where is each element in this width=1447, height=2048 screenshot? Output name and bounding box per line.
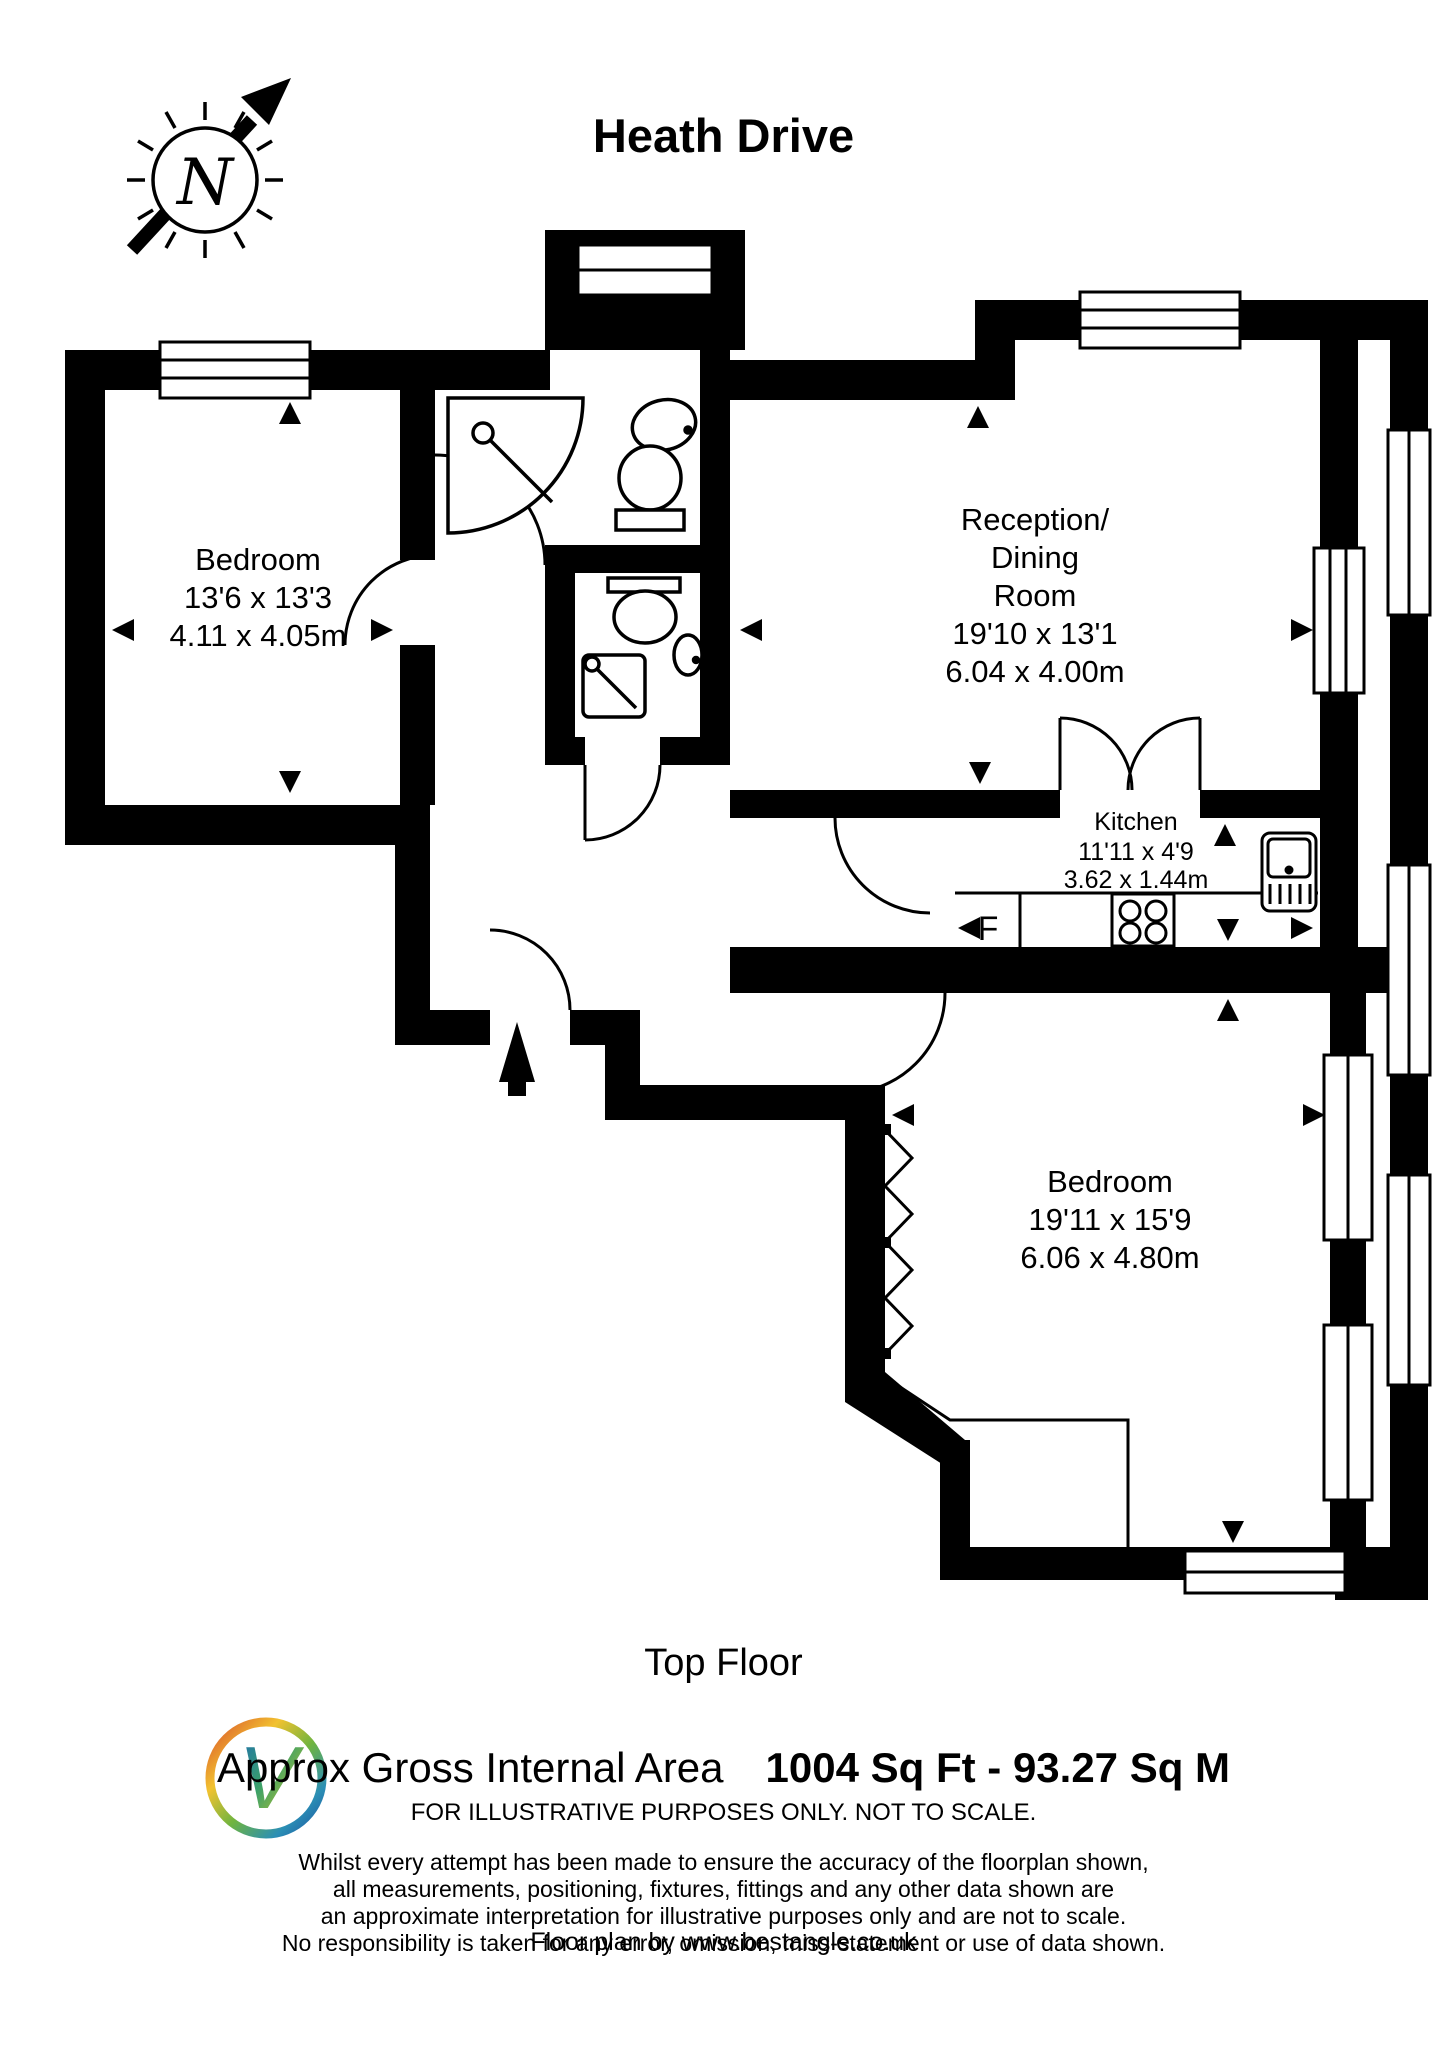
illustrative-note: FOR ILLUSTRATIVE PURPOSES ONLY. NOT TO S… <box>0 1799 1447 1827</box>
reception-metric: 6.04 x 4.00m <box>945 654 1124 689</box>
credit-line: Floor plan by www.bestangle.co.uk <box>0 1928 1447 1957</box>
window-outer-3 <box>1388 1175 1430 1385</box>
door-bedroom2 <box>845 993 945 1093</box>
kitchen-imperial: 11'11 x 4'9 <box>1078 838 1194 866</box>
area-value: 1004 Sq Ft - 93.27 Sq M <box>766 1744 1231 1791</box>
wc-basin-icon <box>674 635 702 675</box>
window-bedroom1-top <box>160 342 310 398</box>
bedroom2-name: Bedroom <box>1047 1164 1173 1199</box>
bedroom1-imperial: 13'6 x 13'3 <box>184 580 332 615</box>
reception-name-1: Reception/ <box>961 502 1110 537</box>
window-reception-east <box>1314 548 1364 693</box>
compass-north-label: N <box>175 146 235 220</box>
wc-toilet-icon <box>608 578 680 643</box>
room-label-bedroom1: Bedroom 13'6 x 13'3 4.11 x 4.05m <box>170 542 347 653</box>
gross-internal-area: Approx Gross Internal Area1004 Sq Ft - 9… <box>0 1744 1447 1792</box>
reception-name-3: Room <box>994 578 1077 613</box>
disclaimer-line-1: Whilst every attempt has been made to en… <box>0 1849 1447 1876</box>
north-compass-icon: N <box>127 78 291 258</box>
entrance-arrow-icon <box>499 1022 535 1096</box>
window-reception-top <box>1080 292 1240 348</box>
window-bedroom2-bottom <box>1185 1551 1345 1593</box>
room-label-reception: Reception/ Dining Room 19'10 x 13'1 6.04… <box>945 502 1124 689</box>
room-labels: Bedroom 13'6 x 13'3 4.11 x 4.05m Recepti… <box>170 502 1209 1275</box>
floorplan-page: Heath Drive N <box>0 0 1447 2048</box>
disclaimer-line-3: an approximate interpretation for illust… <box>0 1903 1447 1930</box>
bedroom2-imperial: 19'11 x 15'9 <box>1029 1202 1192 1237</box>
toilet-icon <box>616 446 684 530</box>
bedroom1-metric: 4.11 x 4.05m <box>170 618 347 653</box>
area-label: Approx Gross Internal Area <box>217 1744 724 1791</box>
corner-shower-icon <box>448 398 583 533</box>
windows <box>160 245 1430 1593</box>
floorplan-drawing: N <box>0 0 1447 1700</box>
floor-name: Top Floor <box>0 1642 1447 1685</box>
reception-imperial: 19'10 x 13'1 <box>952 616 1117 651</box>
bay-step-line <box>882 1375 1128 1547</box>
fridge-label: F <box>978 910 999 948</box>
room-label-kitchen: Kitchen 11'11 x 4'9 3.62 x 1.44m <box>1064 808 1209 894</box>
kitchen-sink-icon <box>1262 833 1316 911</box>
door-entrance <box>490 930 570 1010</box>
kitchen-metric: 3.62 x 1.44m <box>1064 866 1209 894</box>
window-shower-top <box>578 245 712 295</box>
bedroom1-name: Bedroom <box>195 542 321 577</box>
window-outer-1 <box>1388 430 1430 615</box>
window-bedroom2-east-1 <box>1324 1055 1372 1240</box>
hob-icon <box>1112 894 1174 946</box>
window-bedroom2-east-2 <box>1324 1325 1372 1500</box>
reception-name-2: Dining <box>991 540 1079 575</box>
room-label-bedroom2: Bedroom 19'11 x 15'9 6.06 x 4.80m <box>1020 1164 1199 1275</box>
shower-tray-icon <box>583 655 645 717</box>
kitchen-name: Kitchen <box>1094 808 1177 836</box>
door-wc <box>585 765 660 840</box>
walls <box>65 230 1428 1600</box>
window-outer-2 <box>1388 865 1430 1075</box>
bedroom2-metric: 6.06 x 4.80m <box>1020 1240 1199 1275</box>
double-doors-reception <box>1060 718 1200 790</box>
disclaimer-line-2: all measurements, positioning, fixtures,… <box>0 1876 1447 1903</box>
